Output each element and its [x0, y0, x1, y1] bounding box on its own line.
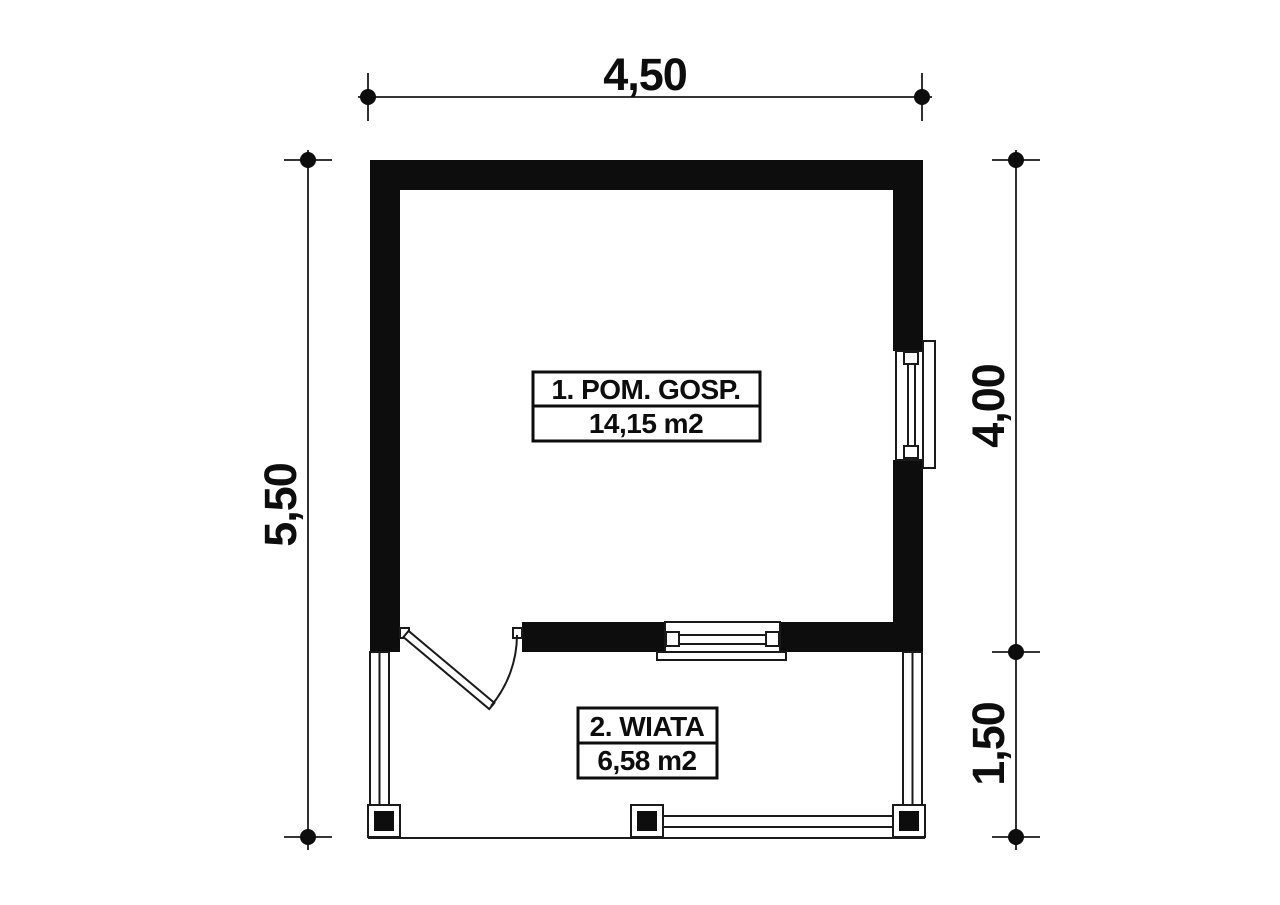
room-2-area: 6,58 m2 — [597, 745, 696, 776]
window-bottom-glazing — [672, 635, 773, 644]
room-label-1: 1. POM. GOSP. 14,15 m2 — [533, 372, 760, 441]
dimension-top: 4,50 — [358, 49, 932, 121]
dimension-right: 4,00 1,50 — [963, 150, 1040, 850]
window-right-glazing — [908, 356, 915, 455]
wall-right-upper — [893, 190, 923, 351]
window-right-cap-bottom — [904, 446, 918, 458]
window-right-cap-top — [904, 352, 918, 364]
railing-bottom — [663, 816, 893, 827]
room-label-2: 2. WIATA 6,58 m2 — [578, 708, 717, 778]
post-center — [631, 805, 663, 837]
dimension-top-value: 4,50 — [603, 49, 687, 100]
dimension-right-lower-value: 1,50 — [963, 702, 1014, 786]
window-bottom-cap-right — [766, 632, 779, 646]
window-bottom-sill — [657, 652, 786, 660]
window-right — [896, 341, 935, 468]
window-bottom-cap-left — [666, 632, 679, 646]
door-leaf — [403, 631, 494, 709]
wall-right-lower — [893, 460, 923, 652]
wall-top — [370, 160, 923, 190]
floor-plan-page: 4,50 5,50 4,00 1,50 1. POM. GO — [0, 0, 1280, 905]
post-right — [893, 805, 925, 837]
room-1-area: 14,15 m2 — [589, 408, 703, 439]
post-left — [368, 805, 400, 837]
room-1-name: 1. POM. GOSP. — [551, 374, 740, 405]
window-bottom — [657, 622, 786, 660]
door-swing-arc — [491, 635, 517, 706]
dimension-right-upper-value: 4,00 — [963, 364, 1014, 448]
room-2-name: 2. WIATA — [590, 711, 705, 742]
wall-left — [370, 190, 400, 652]
window-right-sill — [923, 341, 935, 468]
wall-bottom-left-segment — [522, 622, 665, 652]
door — [400, 628, 522, 709]
dimension-left-value: 5,50 — [255, 463, 306, 547]
dimension-left: 5,50 — [255, 150, 332, 850]
floor-plan-drawing: 4,50 5,50 4,00 1,50 1. POM. GO — [0, 0, 1280, 905]
wall-bottom-right-segment — [780, 622, 893, 652]
